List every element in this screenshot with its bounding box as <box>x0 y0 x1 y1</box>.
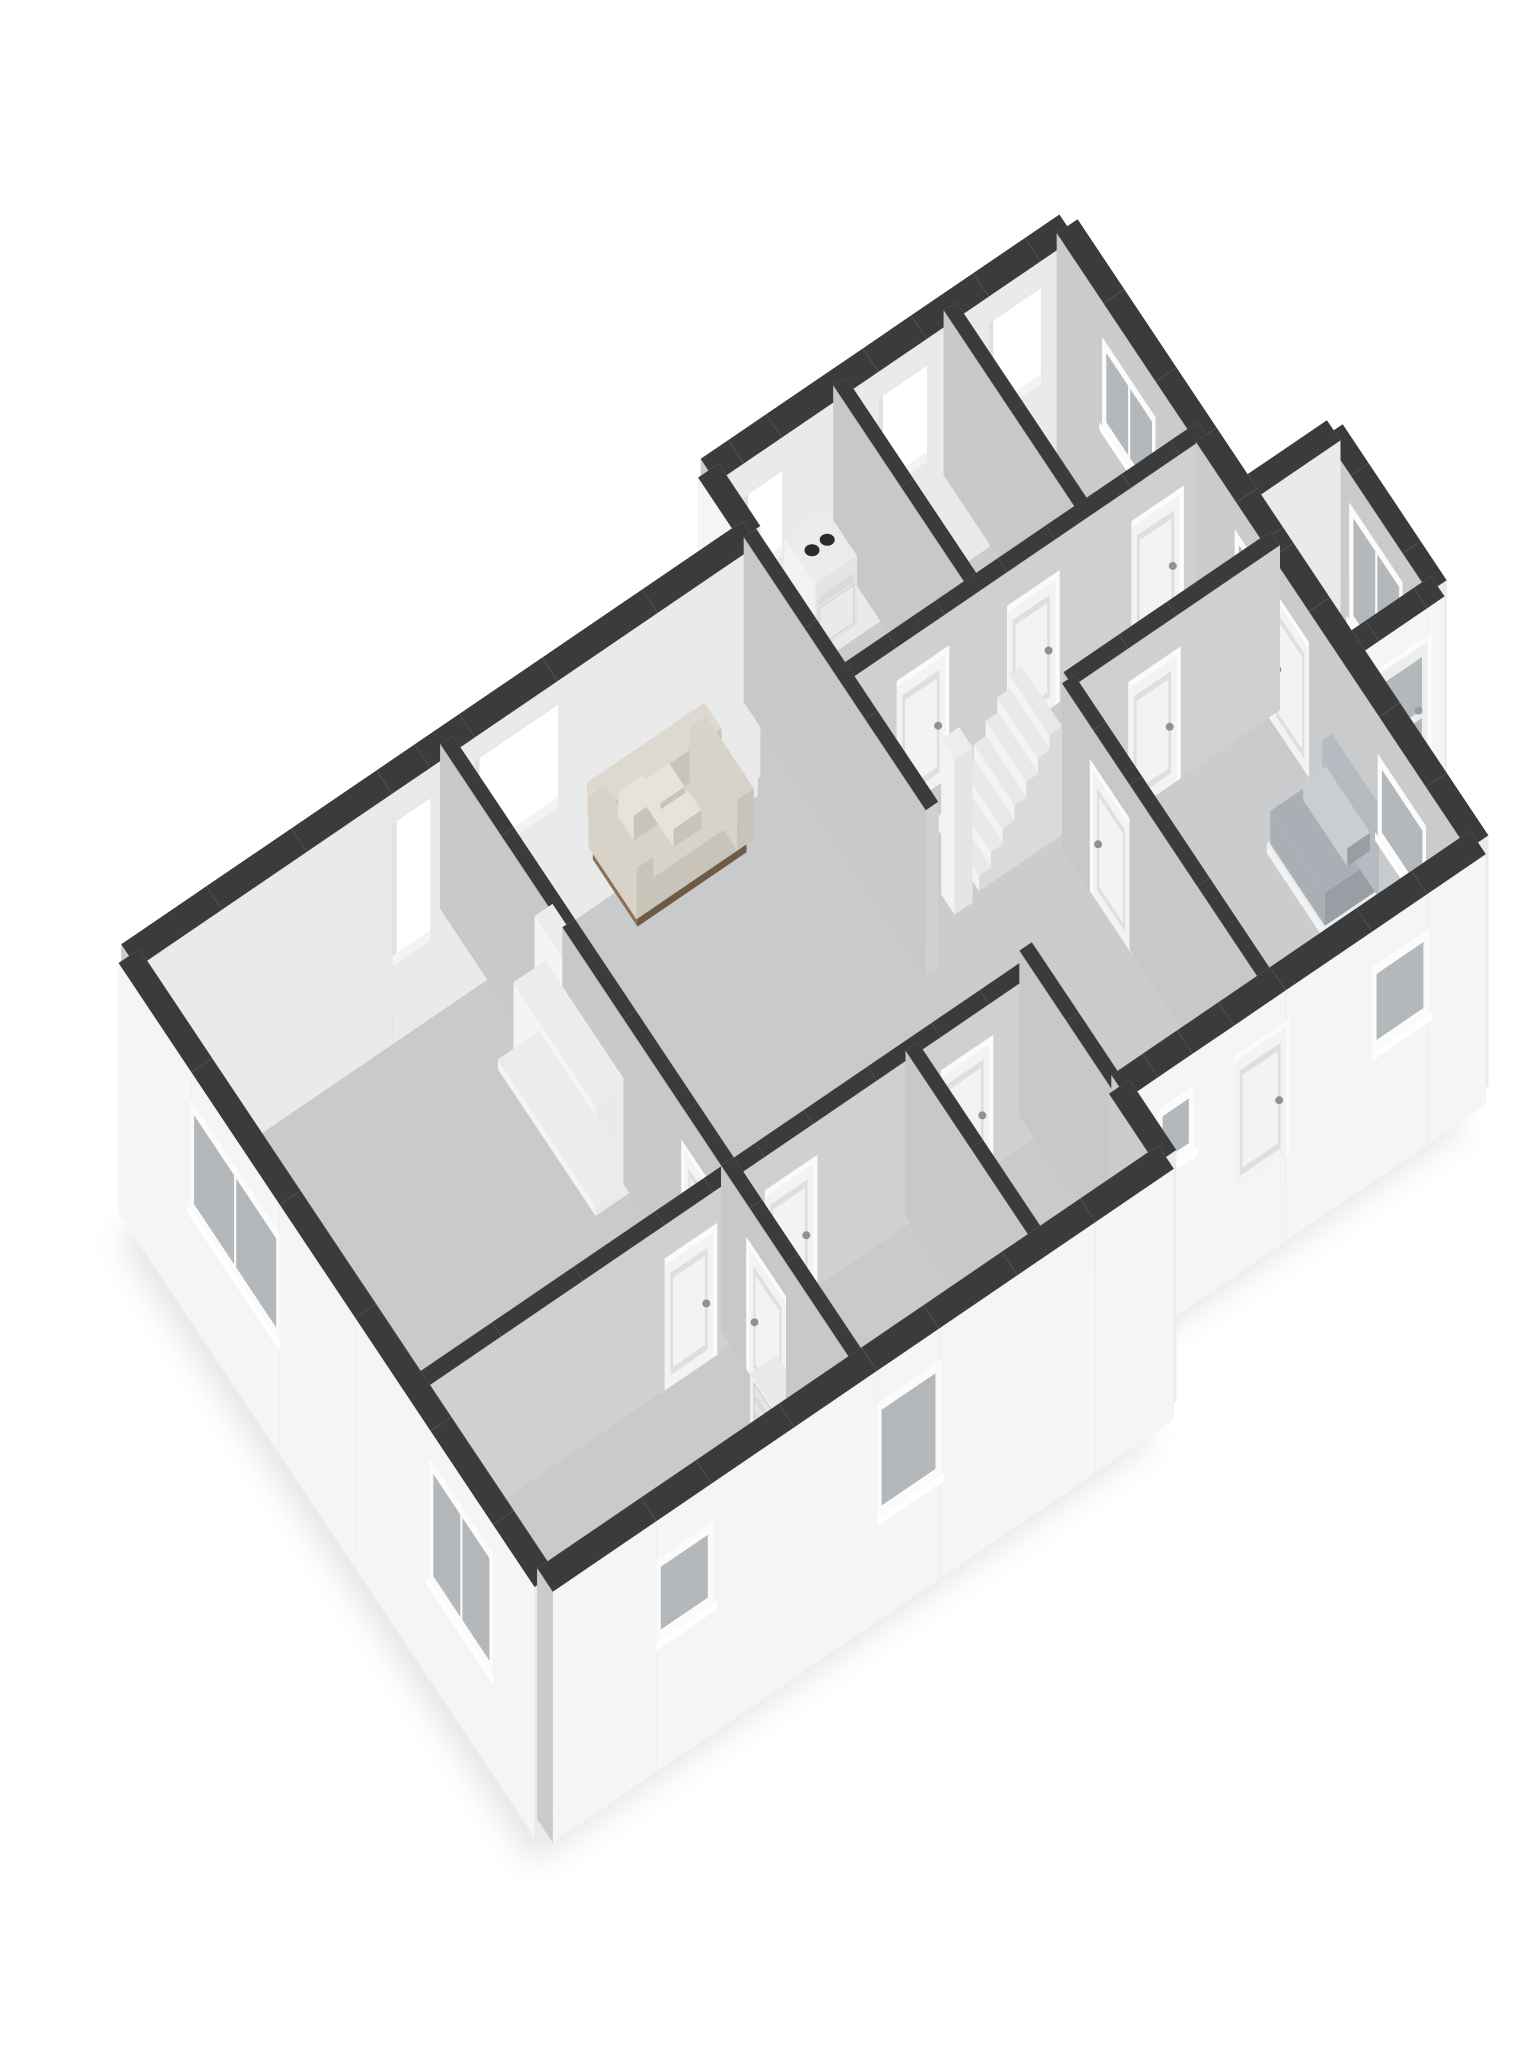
floorplan-3d-render <box>0 0 1536 2048</box>
stair-pillar <box>941 727 972 915</box>
floorplan-page <box>0 0 1536 2048</box>
